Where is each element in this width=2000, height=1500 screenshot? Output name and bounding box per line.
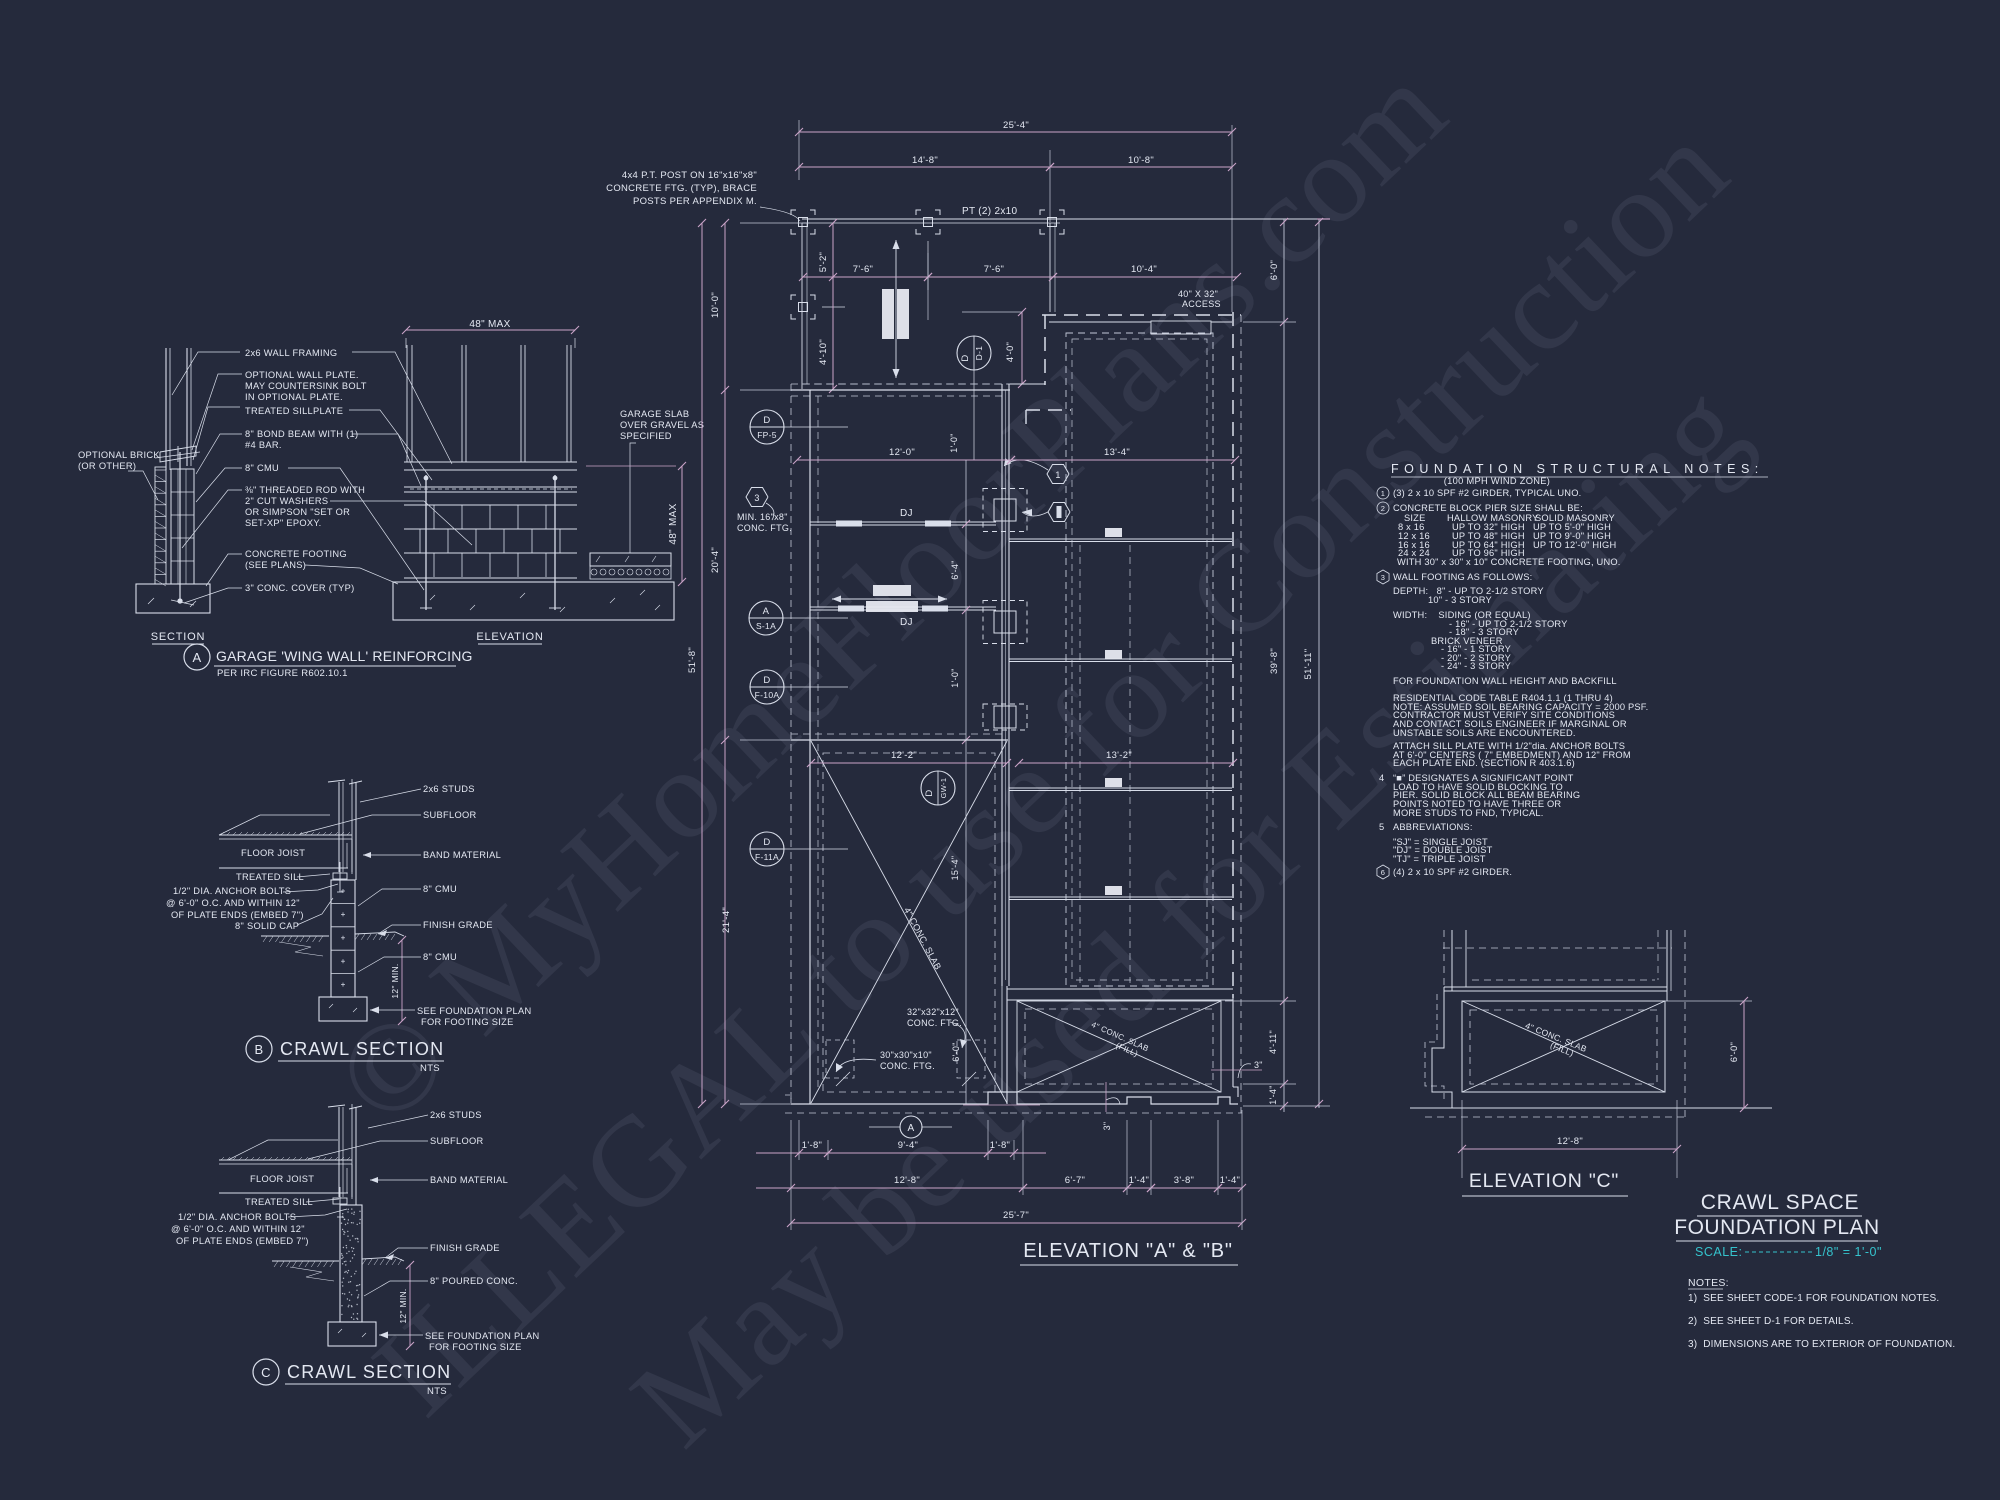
svg-text:SECTION: SECTION <box>151 631 206 643</box>
svg-text:3: 3 <box>754 493 759 503</box>
svg-text:2x6 STUDS: 2x6 STUDS <box>430 1110 482 1120</box>
svg-text:CONCRETE BLOCK PIER SIZE SHALL: CONCRETE BLOCK PIER SIZE SHALL BE: <box>1393 503 1583 513</box>
svg-text:10'-0": 10'-0" <box>710 292 721 318</box>
svg-text:21'-4": 21'-4" <box>721 907 732 933</box>
svg-text:FOUNDATION STRUCTURAL NOTES:: FOUNDATION STRUCTURAL NOTES: <box>1391 462 1764 476</box>
svg-text:15'-4": 15'-4" <box>950 856 960 881</box>
svg-text:7'-6": 7'-6" <box>984 264 1004 275</box>
svg-text:POSTS PER APPENDIX M.: POSTS PER APPENDIX M. <box>633 196 757 207</box>
svg-text:25'-4": 25'-4" <box>1003 120 1029 131</box>
svg-text:1'-4": 1'-4" <box>1129 1175 1149 1186</box>
svg-text:1/2" DIA. ANCHOR BOLTS: 1/2" DIA. ANCHOR BOLTS <box>173 886 291 896</box>
svg-text:12" MIN.: 12" MIN. <box>398 1288 408 1323</box>
svg-text:(SEE PLANS): (SEE PLANS) <box>245 560 306 570</box>
svg-text:NTS: NTS <box>427 1386 447 1397</box>
svg-text:13'-4": 13'-4" <box>1104 447 1130 458</box>
svg-text:MIN. 16"x8": MIN. 16"x8" <box>737 512 788 522</box>
svg-text:D: D <box>763 675 770 686</box>
svg-text:6'-4": 6'-4" <box>950 560 960 579</box>
svg-text:1: 1 <box>1381 489 1385 498</box>
svg-text:D: D <box>763 415 770 426</box>
svg-text:FLOOR JOIST: FLOOR JOIST <box>250 1174 314 1184</box>
svg-text:2) SEE SHEET D-1 FOR DETAILS.: 2) SEE SHEET D-1 FOR DETAILS. <box>1688 1316 1854 1327</box>
svg-text:4x4 P.T. POST ON 16"x16"x8": 4x4 P.T. POST ON 16"x16"x8" <box>622 170 757 181</box>
svg-text:10" - 3 STORY: 10" - 3 STORY <box>1428 595 1492 605</box>
svg-text:1'-8": 1'-8" <box>802 1140 822 1151</box>
svg-text:10'-4": 10'-4" <box>1131 264 1157 275</box>
svg-text:5: 5 <box>1379 822 1384 832</box>
svg-text:FOR FOOTING SIZE: FOR FOOTING SIZE <box>429 1342 522 1352</box>
svg-text:4'-11": 4'-11" <box>1268 1030 1278 1054</box>
svg-text:6'-0": 6'-0" <box>1269 260 1280 280</box>
svg-text:NOTES:: NOTES: <box>1688 1277 1729 1289</box>
svg-text:BAND MATERIAL: BAND MATERIAL <box>430 1175 508 1185</box>
svg-text:32"x32"x12": 32"x32"x12" <box>907 1007 959 1017</box>
svg-text:3" CONC. COVER (TYP): 3" CONC. COVER (TYP) <box>245 583 355 593</box>
svg-text:13'-2": 13'-2" <box>1106 750 1132 761</box>
svg-text:OF PLATE ENDS (EMBED 7"): OF PLATE ENDS (EMBED 7") <box>176 1236 309 1246</box>
svg-text:48" MAX: 48" MAX <box>668 503 679 544</box>
svg-text:8" SOLID CAP: 8" SOLID CAP <box>235 921 299 931</box>
svg-text:OVER GRAVEL AS: OVER GRAVEL AS <box>620 420 704 430</box>
svg-text:ABBREVIATIONS:: ABBREVIATIONS: <box>1393 822 1473 832</box>
svg-text:WITH 30" x 30" x 10" CONCRETE: WITH 30" x 30" x 10" CONCRETE FOOTING, U… <box>1397 557 1621 567</box>
svg-text:4'-0": 4'-0" <box>1005 342 1016 362</box>
svg-text:14'-8": 14'-8" <box>912 155 938 166</box>
svg-text:3: 3 <box>1381 573 1385 582</box>
svg-text:EACH PLATE END. (SECTION R 403: EACH PLATE END. (SECTION R 403.1.6) <box>1393 758 1575 768</box>
svg-text:MAY COUNTERSINK BOLT: MAY COUNTERSINK BOLT <box>245 381 367 391</box>
svg-text:10'-8": 10'-8" <box>1128 155 1154 166</box>
svg-text:8" POURED CONC.: 8" POURED CONC. <box>430 1276 518 1286</box>
svg-text:DJ: DJ <box>900 617 913 628</box>
svg-text:1'-4": 1'-4" <box>1220 1175 1240 1186</box>
svg-text:FOR FOOTING SIZE: FOR FOOTING SIZE <box>421 1017 514 1027</box>
svg-text:51'-11": 51'-11" <box>1303 649 1314 680</box>
svg-text:8" BOND BEAM WITH (1): 8" BOND BEAM WITH (1) <box>245 429 358 439</box>
svg-text:F-10A: F-10A <box>755 690 780 700</box>
svg-text:PT (2) 2x10: PT (2) 2x10 <box>962 206 1017 217</box>
svg-text:"TJ" = TRIPLE JOIST: "TJ" = TRIPLE JOIST <box>1393 854 1486 864</box>
svg-text:1'-0": 1'-0" <box>950 668 960 687</box>
svg-text:(100 MPH WIND ZONE): (100 MPH WIND ZONE) <box>1444 476 1550 486</box>
svg-text:20'-4": 20'-4" <box>710 547 721 573</box>
svg-text:3": 3" <box>1102 1122 1112 1131</box>
svg-text:25'-7": 25'-7" <box>1003 1210 1029 1221</box>
svg-text:5'-2": 5'-2" <box>818 252 829 272</box>
svg-text:A: A <box>193 650 202 665</box>
svg-text:30"x30"x10": 30"x30"x10" <box>880 1050 932 1060</box>
svg-text:48" MAX: 48" MAX <box>469 319 510 330</box>
svg-text:1: 1 <box>1055 470 1060 480</box>
svg-text:OPTIONAL WALL PLATE.: OPTIONAL WALL PLATE. <box>245 370 359 380</box>
svg-text:(3) 2 x 10 SPF #2 GIRDER, TYPI: (3) 2 x 10 SPF #2 GIRDER, TYPICAL UNO. <box>1393 488 1581 498</box>
svg-text:1) SEE SHEET CODE-1 FOR FOUND: 1) SEE SHEET CODE-1 FOR FOUNDATION NOTES… <box>1688 1293 1939 1304</box>
svg-text:TREATED SILL: TREATED SILL <box>236 872 304 882</box>
svg-text:D: D <box>763 837 770 848</box>
svg-text:SUBFLOOR: SUBFLOOR <box>430 1136 484 1146</box>
svg-text:OR SIMPSON "SET OR: OR SIMPSON "SET OR <box>245 507 350 517</box>
svg-text:WALL FOOTING AS FOLLOWS:: WALL FOOTING AS FOLLOWS: <box>1393 572 1532 582</box>
svg-text:3) DIMENSIONS ARE TO EXTERIOR: 3) DIMENSIONS ARE TO EXTERIOR OF FOUNDAT… <box>1688 1339 1955 1350</box>
svg-text:ELEVATION "C": ELEVATION "C" <box>1469 1170 1619 1192</box>
svg-text:1'-4": 1'-4" <box>1268 1085 1278 1104</box>
svg-text:CONCRETE FTG. (TYP), BRACE: CONCRETE FTG. (TYP), BRACE <box>606 183 757 194</box>
svg-text:OPTIONAL BRICK: OPTIONAL BRICK <box>78 450 160 460</box>
svg-text:⅜" THREADED ROD WITH: ⅜" THREADED ROD WITH <box>245 485 365 495</box>
svg-text:NTS: NTS <box>420 1063 440 1074</box>
svg-text:TREATED SILLPLATE: TREATED SILLPLATE <box>245 406 343 416</box>
svg-text:S-1A: S-1A <box>756 621 776 631</box>
svg-text:(OR OTHER): (OR OTHER) <box>78 461 136 471</box>
svg-text:OF PLATE ENDS (EMBED 7"): OF PLATE ENDS (EMBED 7") <box>171 910 304 920</box>
svg-text:UP TO 12'-0" HIGH: UP TO 12'-0" HIGH <box>1533 540 1616 550</box>
svg-text:CONCRETE FOOTING: CONCRETE FOOTING <box>245 549 347 559</box>
svg-text:ACCESS: ACCESS <box>1182 299 1221 309</box>
svg-text:3'-8": 3'-8" <box>1174 1175 1194 1186</box>
svg-text:SCALE:: SCALE: <box>1695 1245 1742 1259</box>
svg-text:6'-0": 6'-0" <box>951 1042 961 1061</box>
svg-text:4'-10": 4'-10" <box>818 339 829 365</box>
svg-text:12'-8": 12'-8" <box>894 1175 920 1186</box>
svg-text:12'-2": 12'-2" <box>891 750 917 761</box>
svg-text:FOUNDATION PLAN: FOUNDATION PLAN <box>1674 1216 1879 1239</box>
svg-text:UNSTABLE SOILS ARE ENCOUNTERED: UNSTABLE SOILS ARE ENCOUNTERED. <box>1393 728 1576 738</box>
svg-text:C: C <box>261 1365 271 1380</box>
svg-text:2" CUT WASHERS: 2" CUT WASHERS <box>245 496 328 506</box>
svg-text:CRAWL SPACE: CRAWL SPACE <box>1701 1191 1860 1214</box>
svg-text:6'-0": 6'-0" <box>1729 1042 1740 1062</box>
svg-text:#4 BAR.: #4 BAR. <box>245 440 282 450</box>
svg-text:1'-8": 1'-8" <box>990 1140 1010 1151</box>
svg-text:B: B <box>255 1042 264 1057</box>
svg-text:6: 6 <box>1381 868 1385 877</box>
svg-text:CRAWL SECTION: CRAWL SECTION <box>280 1039 444 1059</box>
svg-text:SEE FOUNDATION PLAN: SEE FOUNDATION PLAN <box>425 1331 540 1341</box>
svg-text:SPECIFIED: SPECIFIED <box>620 431 672 441</box>
svg-text:BAND MATERIAL: BAND MATERIAL <box>423 850 501 860</box>
svg-text:8" CMU: 8" CMU <box>423 952 457 962</box>
svg-text:9'-4": 9'-4" <box>898 1140 918 1151</box>
svg-text:3": 3" <box>1254 1060 1263 1070</box>
svg-text:1/8" = 1'-0": 1/8" = 1'-0" <box>1815 1245 1882 1259</box>
svg-text:GARAGE 'WING WALL' REINFORCING: GARAGE 'WING WALL' REINFORCING <box>216 648 473 664</box>
svg-text:12'-8": 12'-8" <box>1557 1136 1583 1147</box>
svg-text:12'-0": 12'-0" <box>889 447 915 458</box>
svg-text:- 24" - 3 STORY: - 24" - 3 STORY <box>1441 661 1511 671</box>
svg-text:FLOOR JOIST: FLOOR JOIST <box>241 848 305 858</box>
svg-text:FOR FOUNDATION WALL HEIGHT AND: FOR FOUNDATION WALL HEIGHT AND BACKFILL <box>1393 676 1617 686</box>
svg-text:4: 4 <box>1379 773 1384 783</box>
svg-text:8" CMU: 8" CMU <box>423 884 457 894</box>
svg-text:SET-XP" EPOXY.: SET-XP" EPOXY. <box>245 518 322 528</box>
svg-text:A: A <box>908 1123 915 1134</box>
svg-text:CONC. FTG.: CONC. FTG. <box>880 1061 935 1071</box>
svg-text:FINISH GRADE: FINISH GRADE <box>423 920 493 930</box>
svg-text:GARAGE SLAB: GARAGE SLAB <box>620 409 689 419</box>
svg-text:8" CMU: 8" CMU <box>245 463 279 473</box>
svg-text:D: D <box>960 354 971 361</box>
svg-text:7'-6": 7'-6" <box>853 264 873 275</box>
svg-text:(4) 2 x 10 SPF #2 GIRDER.: (4) 2 x 10 SPF #2 GIRDER. <box>1393 867 1512 877</box>
svg-text:2: 2 <box>1381 504 1385 513</box>
svg-text:2x6 STUDS: 2x6 STUDS <box>423 784 475 794</box>
svg-text:FINISH GRADE: FINISH GRADE <box>430 1243 500 1253</box>
svg-text:D: D <box>924 789 935 796</box>
svg-text:PER IRC FIGURE R602.10.1: PER IRC FIGURE R602.10.1 <box>217 668 348 679</box>
svg-text:ELEVATION "A" & "B": ELEVATION "A" & "B" <box>1023 1240 1233 1262</box>
svg-text:DJ: DJ <box>900 508 913 519</box>
svg-text:51'-8": 51'-8" <box>687 647 698 673</box>
svg-text:TREATED SILL: TREATED SILL <box>245 1197 313 1207</box>
svg-text:GW-1: GW-1 <box>939 778 948 799</box>
svg-text:SUBFLOOR: SUBFLOOR <box>423 810 477 820</box>
svg-text:39'-8": 39'-8" <box>1269 648 1280 674</box>
svg-text:6'-7": 6'-7" <box>1065 1175 1085 1186</box>
svg-text:MORE STUDS TO FND, TYPICAL.: MORE STUDS TO FND, TYPICAL. <box>1393 808 1544 818</box>
svg-text:CRAWL SECTION: CRAWL SECTION <box>287 1362 451 1382</box>
svg-text:ELEVATION: ELEVATION <box>476 631 543 643</box>
svg-text:A: A <box>763 606 770 617</box>
svg-text:FP-5: FP-5 <box>757 430 777 440</box>
svg-text:IN OPTIONAL PLATE.: IN OPTIONAL PLATE. <box>245 392 343 402</box>
svg-text:SEE FOUNDATION PLAN: SEE FOUNDATION PLAN <box>417 1006 532 1016</box>
svg-text:CONC. FTG.: CONC. FTG. <box>737 523 792 533</box>
svg-text:D-1: D-1 <box>974 346 984 361</box>
svg-text:2x6 WALL FRAMING: 2x6 WALL FRAMING <box>245 348 337 358</box>
svg-text:40" X 32": 40" X 32" <box>1178 289 1218 299</box>
svg-text:@ 6'-0" O.C. AND WITHIN 12": @ 6'-0" O.C. AND WITHIN 12" <box>171 1224 305 1234</box>
svg-text:F-11A: F-11A <box>755 852 779 862</box>
svg-text:1'-0": 1'-0" <box>949 433 959 452</box>
svg-text:@ 6'-0" O.C. AND WITHIN 12": @ 6'-0" O.C. AND WITHIN 12" <box>166 898 300 908</box>
svg-text:1/2" DIA. ANCHOR BOLTS: 1/2" DIA. ANCHOR BOLTS <box>178 1212 296 1222</box>
svg-text:12" MIN.: 12" MIN. <box>390 963 400 998</box>
